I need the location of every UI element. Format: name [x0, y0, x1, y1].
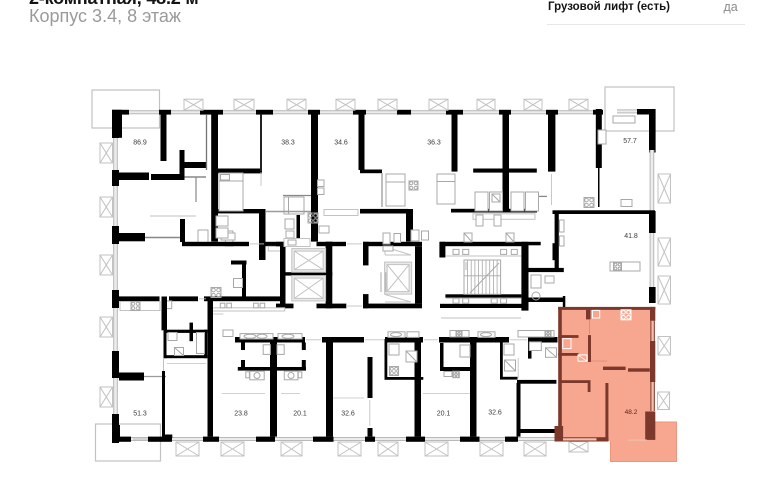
svg-text:23.8: 23.8	[234, 411, 248, 418]
svg-text:20.1: 20.1	[437, 411, 451, 418]
svg-text:32.6: 32.6	[488, 410, 502, 417]
svg-text:32.6: 32.6	[341, 411, 355, 418]
svg-text:36.3: 36.3	[427, 140, 441, 147]
svg-text:38.3: 38.3	[281, 140, 295, 147]
svg-text:48.2: 48.2	[625, 409, 638, 416]
svg-text:34.6: 34.6	[334, 140, 348, 147]
svg-text:51.3: 51.3	[133, 411, 147, 418]
svg-text:86.9: 86.9	[133, 140, 147, 147]
svg-text:41.8: 41.8	[624, 233, 638, 240]
svg-text:20.1: 20.1	[293, 411, 307, 418]
svg-text:57.7: 57.7	[623, 138, 637, 145]
